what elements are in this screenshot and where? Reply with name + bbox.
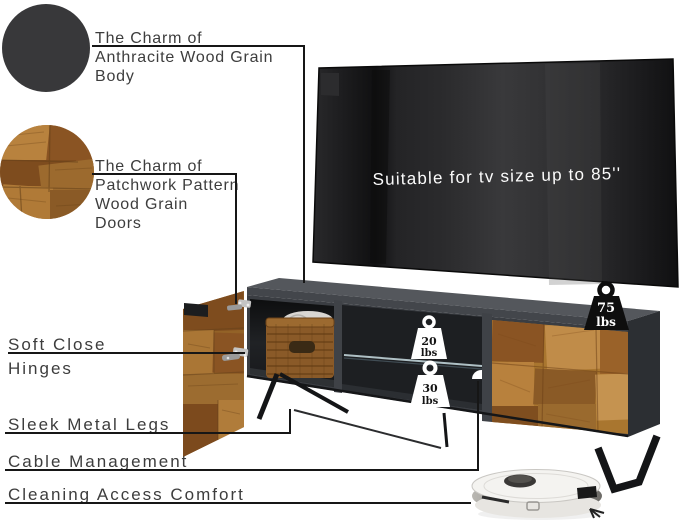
basket-handle-slot <box>289 341 315 353</box>
weight-20-unit: lbs <box>421 348 438 359</box>
rear-leg-bar <box>294 410 441 448</box>
anthracite-callout-label: The Charm of Anthracite Wood Grain Body <box>95 30 273 85</box>
wood-swatch-circle <box>0 121 100 222</box>
robot-vacuum <box>472 470 604 520</box>
sleek-metal-legs-label: Sleek Metal Legs <box>8 415 170 434</box>
tv-screen: Suitable for tv size up to 85'' <box>313 59 678 287</box>
stand-right-side <box>628 311 660 437</box>
soft-close-label-line1: Soft Close <box>8 335 106 354</box>
soft-close-label-line2: Hinges <box>8 359 73 378</box>
weight-20-value: 20 <box>421 335 437 348</box>
weight-30-value: 30 <box>422 382 438 395</box>
weight-30-unit: lbs <box>422 396 439 407</box>
door-handle <box>184 303 208 317</box>
cleaning-access-label: Cleaning Access Comfort <box>8 485 245 504</box>
anthracite-label-line3: Body <box>95 68 135 85</box>
anthracite-label-line2: Anthracite Wood Grain <box>95 49 273 66</box>
patchwork-label-line3: Wood Grain <box>95 196 188 213</box>
cable-management-label: Cable Management <box>8 452 188 471</box>
left-front-leg <box>259 374 277 419</box>
weight-75-value: 75 <box>597 301 615 316</box>
scene: The Charm of Anthracite Wood Grain Body … <box>0 0 679 520</box>
right-metal-leg <box>598 436 657 489</box>
anthracite-swatch-circle <box>2 4 90 92</box>
tv-screen-reflection-patch <box>321 73 339 96</box>
wicker-basket <box>266 311 334 378</box>
patchwork-callout-label: The Charm of Patchwork Pattern Wood Grai… <box>95 158 239 232</box>
patchwork-label-line1: The Charm of <box>95 158 202 175</box>
patchwork-label-line4: Doors <box>95 215 142 232</box>
vacuum-front-sensor-window <box>577 486 597 499</box>
middle-support-leg <box>444 413 447 447</box>
weight-75-unit: lbs <box>596 315 616 329</box>
patchwork-label-line2: Patchwork Pattern <box>95 177 239 194</box>
product-infographic: The Charm of Anthracite Wood Grain Body … <box>0 0 679 520</box>
anthracite-label-line1: The Charm of <box>95 30 202 47</box>
